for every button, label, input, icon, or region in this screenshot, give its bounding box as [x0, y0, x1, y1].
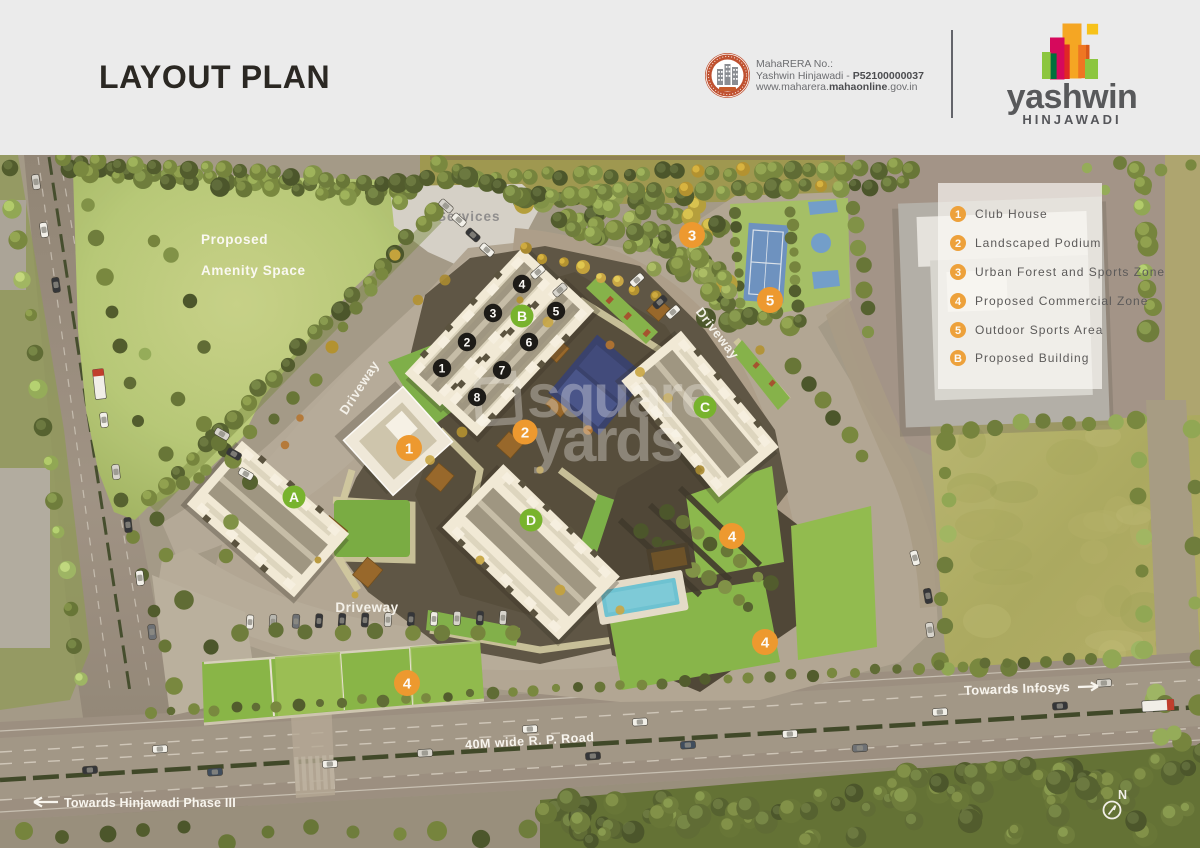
svg-text:HINJAWADI: HINJAWADI	[1022, 112, 1121, 127]
svg-text:yashwin: yashwin	[1007, 78, 1138, 116]
